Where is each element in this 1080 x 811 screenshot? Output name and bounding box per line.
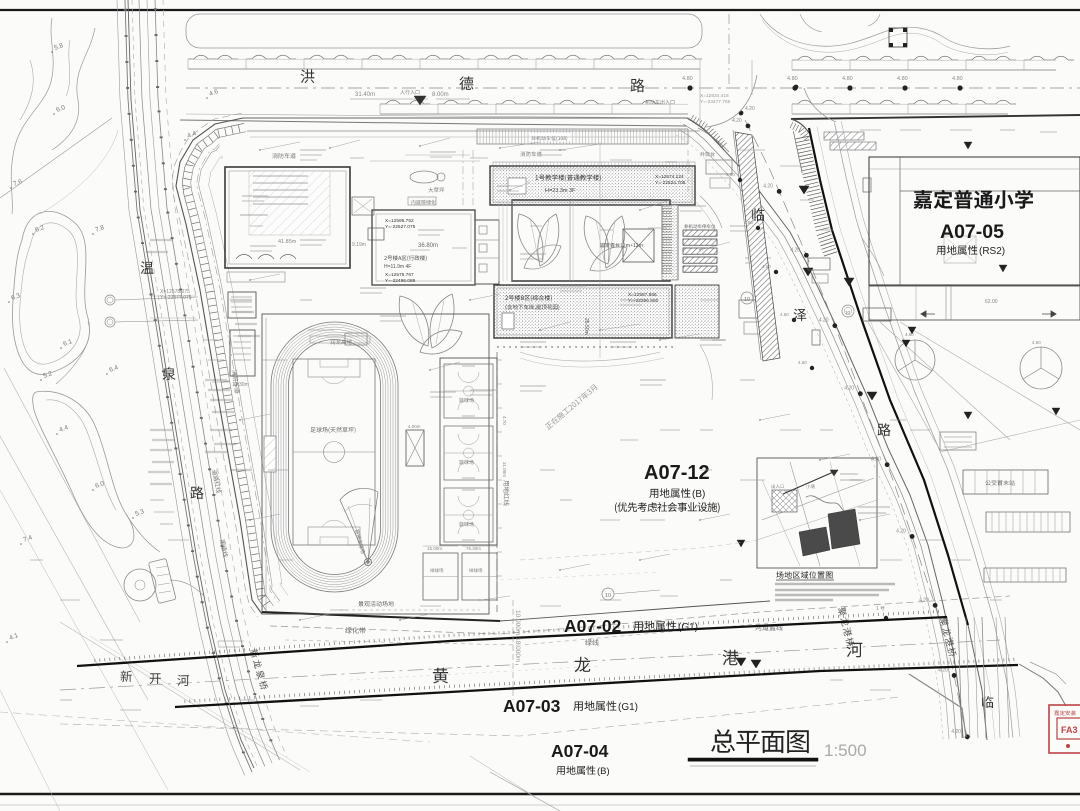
svg-text:31.40m: 31.40m xyxy=(355,92,375,98)
svg-text:4.80: 4.80 xyxy=(952,76,963,82)
svg-text:4.20: 4.20 xyxy=(790,247,800,253)
svg-text:A07-04: A07-04 xyxy=(551,741,609,761)
svg-text:4.60: 4.60 xyxy=(780,312,789,317)
svg-text:62.00: 62.00 xyxy=(985,299,998,305)
svg-text:4.20: 4.20 xyxy=(745,106,755,112)
svg-text:41.85m: 41.85m xyxy=(278,239,297,245)
svg-text:A07-03: A07-03 xyxy=(503,696,561,716)
svg-text:4.20: 4.20 xyxy=(763,183,773,189)
svg-text:4.80: 4.80 xyxy=(682,76,693,82)
svg-text:4.60: 4.60 xyxy=(1032,340,1041,345)
svg-text:4.60: 4.60 xyxy=(762,264,771,269)
svg-text:9.19m: 9.19m xyxy=(352,242,366,248)
svg-text:Y=-22577.075: Y=-22577.075 xyxy=(160,295,192,301)
svg-text:A07-12: A07-12 xyxy=(644,462,710,484)
svg-text:4.60: 4.60 xyxy=(798,360,807,365)
svg-text:X=12595.752: X=12595.752 xyxy=(385,218,414,224)
svg-text:4.20: 4.20 xyxy=(819,318,829,324)
svg-text:4.80: 4.80 xyxy=(842,76,853,82)
svg-text:Y=-22524.705: Y=-22524.705 xyxy=(655,180,686,186)
svg-text:1: 1 xyxy=(876,606,879,612)
svg-text:(RS2): (RS2) xyxy=(979,246,1005,257)
svg-text:4.20: 4.20 xyxy=(844,386,854,392)
svg-text:Y=-22496.088: Y=-22496.088 xyxy=(385,278,416,284)
svg-text:Y=-22527.075: Y=-22527.075 xyxy=(385,224,416,230)
svg-text:H=23.3m 3F: H=23.3m 3F xyxy=(545,188,576,194)
svg-text:10: 10 xyxy=(605,593,611,599)
svg-text:4.00m: 4.00m xyxy=(408,424,421,429)
svg-text:10: 10 xyxy=(744,297,750,303)
svg-text:31.00m: 31.00m xyxy=(502,462,507,477)
svg-text:13.30m: 13.30m xyxy=(232,382,249,388)
svg-text:Y=-23477.755: Y=-23477.755 xyxy=(700,99,731,105)
svg-text:36.80m: 36.80m xyxy=(418,243,438,249)
svg-text:10: 10 xyxy=(845,310,851,315)
svg-text:1:500: 1:500 xyxy=(824,741,867,760)
svg-text:(G1): (G1) xyxy=(678,622,698,633)
svg-text:8.00m: 8.00m xyxy=(432,92,449,98)
svg-text:4.80: 4.80 xyxy=(897,76,908,82)
svg-text:(B): (B) xyxy=(597,766,610,777)
svg-text:4.20: 4.20 xyxy=(896,528,906,534)
svg-text:4.20: 4.20 xyxy=(732,118,742,124)
svg-text:15.00m: 15.00m xyxy=(427,546,442,551)
svg-text:4.60: 4.60 xyxy=(744,220,753,225)
svg-text:75.30m: 75.30m xyxy=(466,546,481,551)
svg-text:H=11.9m 4F: H=11.9m 4F xyxy=(384,264,411,270)
svg-text:10.000m 18.000m: 10.000m 18.000m xyxy=(514,610,521,662)
svg-text:Y=-22396.980: Y=-22396.980 xyxy=(628,298,659,304)
svg-text:X=12587.866: X=12587.866 xyxy=(628,292,657,298)
svg-text:4.20: 4.20 xyxy=(951,729,961,735)
svg-text:A07-05: A07-05 xyxy=(940,221,1004,243)
svg-text:4.60: 4.60 xyxy=(726,172,735,177)
svg-text:X=12574.124: X=12574.124 xyxy=(655,174,684,180)
svg-text:A07-02: A07-02 xyxy=(564,616,622,636)
svg-text:X=12834.418: X=12834.418 xyxy=(700,93,729,99)
svg-text:(B): (B) xyxy=(692,489,705,500)
svg-text:X=12575.767: X=12575.767 xyxy=(385,272,414,278)
svg-text:4.70: 4.70 xyxy=(502,416,507,425)
svg-text:4.20: 4.20 xyxy=(919,597,929,603)
svg-text:4.80: 4.80 xyxy=(787,76,798,82)
svg-text:FA3: FA3 xyxy=(1061,725,1078,735)
svg-text:25.50m: 25.50m xyxy=(583,318,589,335)
svg-text:(G1): (G1) xyxy=(618,702,638,713)
